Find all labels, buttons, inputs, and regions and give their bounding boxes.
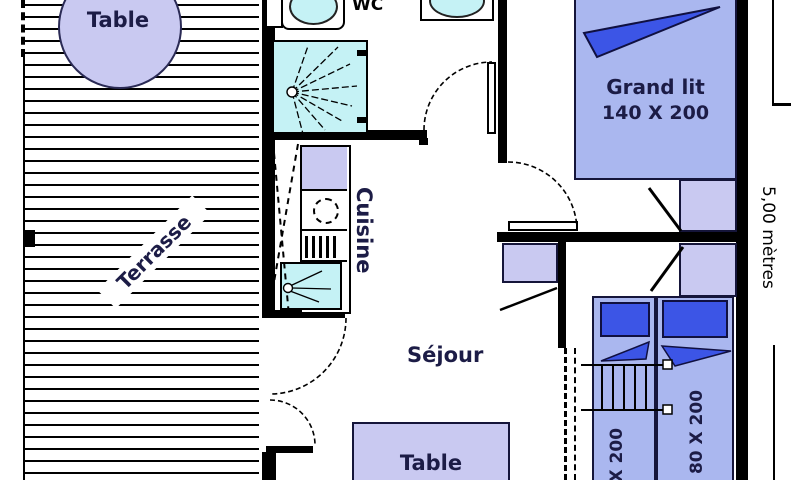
shower-spray-icon <box>292 46 357 134</box>
bunk-ladder <box>581 360 672 414</box>
terrace-door-arc-small <box>270 400 315 445</box>
sink-faucet-icon <box>290 271 331 302</box>
terrace-door-arc-large <box>270 318 346 394</box>
shower-head-icon <box>287 87 297 97</box>
floor-plan: Table Terrasse WC Cuisine Séjour Table G… <box>0 0 796 480</box>
double-bed-duvet-triangle <box>584 7 720 57</box>
bunk-left-duvet-triangle <box>601 342 649 361</box>
bathroom-door-arc <box>424 62 492 130</box>
bedroom-door-arc <box>508 162 577 231</box>
door-leaf-diagonal-bedroom1 <box>649 188 681 231</box>
kitchen-dashed-line-2 <box>270 144 298 305</box>
sink-drain-icon <box>284 284 293 293</box>
plan-line-overlay <box>0 0 796 480</box>
door-leaf-diagonal-bedroom2 <box>651 247 683 291</box>
door-leaf-diagonal-living <box>500 288 557 310</box>
